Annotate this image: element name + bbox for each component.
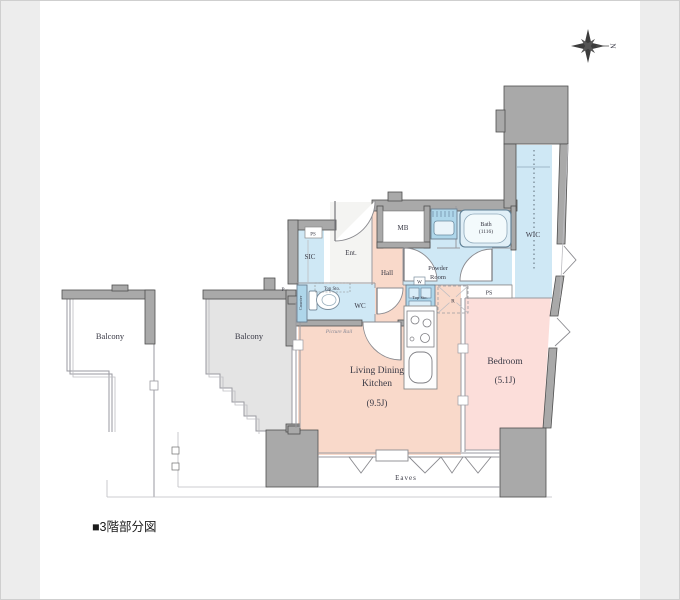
wall-mb-bottom [377,242,430,248]
stove-burner-1 [411,316,419,324]
wall-topright-tab [496,110,505,132]
compass-north-label: N [609,43,618,49]
label-powder-1: Powder [428,265,449,272]
room-bedroom-floor [465,298,551,450]
label-ldk-2: Kitchen [362,379,392,389]
label-ldk-1: Living Dining [350,366,404,376]
wall-balcony-left-top [62,290,154,299]
label-meter-box: MB [398,224,409,232]
label-balcony-left: Balcony [96,331,125,341]
label-bedroom: Bedroom [487,357,523,367]
label-powder-2: Room [430,274,446,281]
wall-bath-wic-divider [511,206,516,250]
kitchen-sink [409,352,432,383]
label-bedroom-size: (5.1J) [495,375,516,385]
ldk-balcony-window-joint [293,340,303,350]
wall-mb-notch [388,192,402,201]
label-balcony-right: Balcony [235,331,264,341]
label-refrigerator: R [451,299,455,305]
wall-balcony-right-top [203,290,288,299]
floor-plan-page: N Balcony Balcony [0,0,680,600]
eaves-sill [376,450,408,461]
label-ps-bedroom: PS [486,291,493,297]
label-bath: Bath [480,222,491,228]
wall-wic-left [504,144,516,208]
label-picture-rail: Picture Rail [325,329,353,335]
label-laundry-storage: Top Sto. [412,295,427,300]
plan-caption: ■3階部分図 [92,519,157,534]
block-notch-2 [172,463,179,470]
ldk-bedroom-joint-1 [458,344,468,353]
toilet-tank [309,291,317,310]
stove-burner-2 [423,319,431,327]
label-eaves: Eaves [395,474,417,482]
label-wic: WIC [526,230,541,239]
label-pipe: P [281,287,284,293]
label-ldk-size: (9.5J) [367,398,388,408]
stove [407,311,434,347]
stove-burner-3 [421,334,430,343]
wall-balcony-left-end [145,290,155,344]
wall-left [288,220,298,284]
ldk-bedroom-joint-2 [458,396,468,405]
room-wic-floor [515,145,552,298]
label-bath-size: (1116) [479,228,493,235]
wall-topright-block [504,86,568,144]
floor-plan-canvas: N Balcony Balcony [0,0,680,600]
label-entrance: Ent. [345,249,357,257]
balcony-left-divider-joint [150,381,158,390]
label-wc-top-storage: Top Sto. [324,287,340,292]
wall-ldk-window-hook-bottom [288,426,300,434]
label-hall: Hall [381,269,393,277]
label-wc-counter: Counter [298,295,303,310]
wall-block-bottom-right [500,428,546,497]
wall-balcony-left-bump [112,285,128,291]
block-notch-1 [172,447,179,454]
label-wc: WC [354,302,366,310]
label-sic: SIC [305,253,316,261]
vanity-sink [434,221,454,235]
label-ps-entrance: PS [310,233,316,238]
wall-block-bottom-left [266,430,318,487]
label-washer: W [417,281,422,286]
stove-knob [410,337,414,341]
